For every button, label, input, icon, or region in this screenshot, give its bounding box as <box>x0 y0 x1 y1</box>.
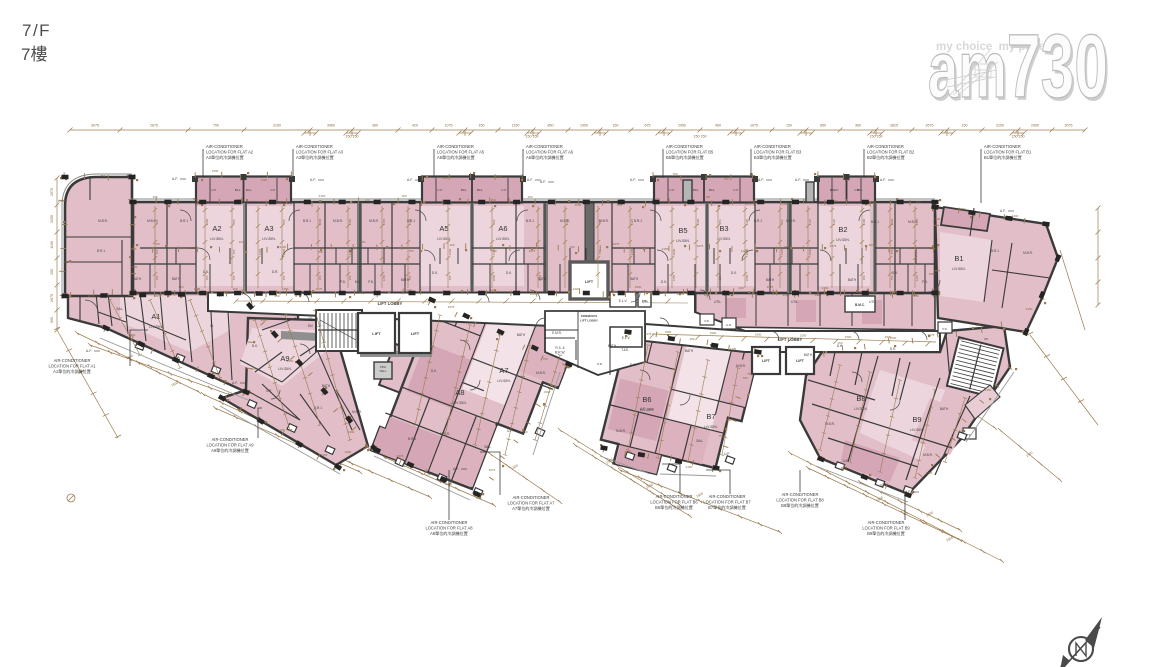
svg-text:LOCATION FOR FLAT B7: LOCATION FOR FLAT B7 <box>703 500 751 505</box>
svg-text:B.R.1: B.R.1 <box>303 219 311 223</box>
svg-text:A.F.: A.F. <box>640 407 646 411</box>
svg-text:1500: 1500 <box>885 335 892 339</box>
svg-text:LOCATION FOR FLAT B5: LOCATION FOR FLAT B5 <box>666 150 714 155</box>
svg-text:2150: 2150 <box>1026 307 1033 311</box>
svg-text:A.F.: A.F. <box>172 177 178 181</box>
svg-text:B.R.1: B.R.1 <box>871 220 879 224</box>
svg-text:3150: 3150 <box>50 215 54 223</box>
svg-text:150: 150 <box>155 275 159 280</box>
svg-text:A1單位的冷調機位置: A1單位的冷調機位置 <box>53 368 91 374</box>
svg-text:LOCATION FOR FLAT A5: LOCATION FOR FLAT A5 <box>437 150 485 155</box>
svg-text:LOCATION FOR FLAT A9: LOCATION FOR FLAT A9 <box>206 443 254 448</box>
svg-text:BAL.: BAL. <box>693 188 700 192</box>
svg-text:AIR-CONDITIONER: AIR-CONDITIONER <box>709 494 746 499</box>
svg-text:3075: 3075 <box>613 242 620 246</box>
svg-text:2400: 2400 <box>448 248 452 255</box>
svg-text:AIR-CONDITIONER: AIR-CONDITIONER <box>212 437 249 442</box>
svg-text:LOCATION FOR FLAT B3: LOCATION FOR FLAT B3 <box>754 150 802 155</box>
svg-text:A.F.: A.F. <box>86 349 92 353</box>
svg-text:420: 420 <box>412 124 418 128</box>
svg-text:D.R.: D.R. <box>272 270 278 274</box>
svg-text:3075: 3075 <box>496 175 503 179</box>
svg-text:750: 750 <box>408 275 412 280</box>
svg-text:1150: 1150 <box>512 124 520 128</box>
svg-text:A7單位的冷調機位置: A7單位的冷調機位置 <box>512 505 550 511</box>
svg-text:U.P.: U.P. <box>266 389 272 393</box>
svg-text:B9: B9 <box>912 415 921 424</box>
svg-text:LOCATION FOR FLAT A1: LOCATION FOR FLAT A1 <box>48 364 96 369</box>
svg-text:A.F.: A.F. <box>905 490 911 494</box>
svg-text:750: 750 <box>890 275 894 280</box>
svg-text:1500: 1500 <box>575 203 582 207</box>
svg-text:2150: 2150 <box>321 453 328 457</box>
svg-text:B9單位的冷調機位置: B9單位的冷調機位置 <box>867 530 905 536</box>
svg-text:100: 100 <box>232 287 237 291</box>
svg-text:150: 150 <box>348 275 352 280</box>
svg-text:1125: 1125 <box>745 219 749 226</box>
svg-text:UTIL.: UTIL. <box>791 300 799 304</box>
svg-text:1075: 1075 <box>445 124 453 128</box>
svg-text:900: 900 <box>50 317 54 323</box>
svg-text:A2單位的冷調機位置: A2單位的冷調機位置 <box>206 154 244 160</box>
svg-text:AIR-CONDITIONER: AIR-CONDITIONER <box>54 358 91 363</box>
svg-text:2400: 2400 <box>348 248 352 255</box>
svg-text:A6單位的冷調機位置: A6單位的冷調機位置 <box>526 154 564 160</box>
svg-text:1500: 1500 <box>845 335 852 339</box>
svg-text:LOCATION FOR FLAT B1: LOCATION FOR FLAT B1 <box>984 150 1032 155</box>
svg-text:AIR-CONDITIONER: AIR-CONDITIONER <box>656 494 693 499</box>
svg-text:1500: 1500 <box>510 463 518 470</box>
svg-text:BATH: BATH <box>608 344 617 348</box>
svg-text:100: 100 <box>250 367 255 371</box>
svg-text:LOCATION FOR FLAT A3: LOCATION FOR FLAT A3 <box>296 150 344 155</box>
svg-text:150: 150 <box>152 195 157 199</box>
svg-text:3150: 3150 <box>273 124 281 128</box>
svg-text:M.B.R.: M.B.R. <box>536 371 546 375</box>
svg-text:1950: 1950 <box>580 124 588 128</box>
svg-text:LIV./DIN.: LIV./DIN. <box>910 428 924 432</box>
svg-text:2400: 2400 <box>926 471 933 475</box>
svg-text:1500: 1500 <box>220 379 227 383</box>
svg-text:A.F.: A.F. <box>1000 209 1006 213</box>
svg-text:P.D.: P.D. <box>943 327 948 331</box>
svg-text:LIV./DIN.: LIV./DIN. <box>210 237 224 241</box>
svg-text:U.P.: U.P. <box>843 459 849 463</box>
svg-text:150: 150 <box>479 124 485 128</box>
svg-text:AIR-CONDITIONER: AIR-CONDITIONER <box>867 144 904 149</box>
svg-text:150: 150 <box>492 219 496 224</box>
svg-text:A8單位的冷調機位置: A8單位的冷調機位置 <box>430 530 468 536</box>
svg-text:A.F.: A.F. <box>310 178 316 182</box>
svg-text:150: 150 <box>63 260 68 264</box>
svg-text:1500: 1500 <box>929 272 936 276</box>
svg-text:LIV./DIN.: LIV./DIN. <box>836 238 850 242</box>
svg-text:2400: 2400 <box>358 291 365 295</box>
svg-text:1125: 1125 <box>630 219 634 226</box>
svg-text:AIR-CONDITIONER: AIR-CONDITIONER <box>437 144 474 149</box>
svg-text:2400: 2400 <box>630 248 634 255</box>
svg-text:D.K.: D.K. <box>506 271 512 275</box>
svg-text:150: 150 <box>718 275 722 280</box>
svg-text:A.F.: A.F. <box>527 178 533 182</box>
svg-text:2000: 2000 <box>745 248 749 255</box>
svg-text:LIV./DIN.: LIV./DIN. <box>278 367 292 371</box>
svg-text:B.R.1: B.R.1 <box>754 219 762 223</box>
svg-text:150: 150 <box>527 195 532 199</box>
svg-text:3150: 3150 <box>996 124 1004 128</box>
svg-text:am730: am730 <box>928 17 1108 117</box>
svg-text:150: 150 <box>689 337 694 341</box>
svg-text:150: 150 <box>448 275 452 280</box>
svg-text:2000: 2000 <box>492 274 496 281</box>
svg-text:M.R.W.: M.R.W. <box>555 351 566 355</box>
svg-text:UTIL.: UTIL. <box>642 300 650 304</box>
svg-text:2000: 2000 <box>890 218 894 225</box>
svg-text:100: 100 <box>153 294 158 298</box>
svg-text:2950: 2950 <box>1031 124 1039 128</box>
svg-text:3075: 3075 <box>490 288 497 292</box>
svg-text:D.K.: D.K. <box>432 271 438 275</box>
svg-text:7/F: 7/F <box>22 21 51 40</box>
svg-text:B6: B6 <box>642 395 651 404</box>
svg-text:2400: 2400 <box>348 430 355 434</box>
svg-text:750: 750 <box>672 172 677 176</box>
svg-text:D.K.: D.K. <box>661 280 667 284</box>
svg-text:3075: 3075 <box>869 243 876 247</box>
svg-text:100: 100 <box>738 286 743 290</box>
svg-text:850: 850 <box>548 124 554 128</box>
svg-text:150: 150 <box>915 200 920 204</box>
svg-text:675: 675 <box>645 124 651 128</box>
svg-text:AIR-CONDITIONER: AIR-CONDITIONER <box>666 144 703 149</box>
svg-text:3075: 3075 <box>448 305 455 309</box>
svg-text:M.P.: M.P. <box>355 280 361 284</box>
svg-text:T.&S.: T.&S. <box>621 348 629 352</box>
svg-text:160: 160 <box>613 124 619 128</box>
svg-text:W.: W. <box>210 324 214 328</box>
svg-text:A3單位的冷調機位置: A3單位的冷調機位置 <box>296 154 334 160</box>
svg-text:2150: 2150 <box>276 200 283 204</box>
svg-text:1125: 1125 <box>915 275 919 282</box>
svg-text:LIV./DIN.: LIV./DIN. <box>437 237 451 241</box>
svg-text:2150: 2150 <box>319 194 326 198</box>
svg-text:3150: 3150 <box>915 218 919 225</box>
svg-text:BATH: BATH <box>630 277 639 281</box>
svg-text:A8: A8 <box>455 388 464 397</box>
svg-text:3075: 3075 <box>88 294 95 298</box>
svg-text:DN: DN <box>960 337 964 341</box>
svg-text:M.B.R.: M.B.R. <box>616 429 626 433</box>
svg-text:UP: UP <box>308 317 312 321</box>
svg-text:3150: 3150 <box>258 248 262 255</box>
svg-text:UTIL.: UTIL. <box>714 300 722 304</box>
svg-text:A2: A2 <box>212 224 221 233</box>
svg-text:UTIL.: UTIL. <box>869 300 877 304</box>
svg-text:A.F.: A.F. <box>630 178 636 182</box>
svg-text:1125: 1125 <box>911 293 918 297</box>
svg-text:3075: 3075 <box>529 249 536 253</box>
svg-text:150: 150 <box>569 245 574 249</box>
svg-text:D.K.: D.K. <box>252 344 258 348</box>
svg-text:BATH: BATH <box>766 278 775 282</box>
svg-text:1500: 1500 <box>755 332 762 336</box>
svg-text:B6單位的冷調機位置: B6單位的冷調機位置 <box>655 504 693 510</box>
svg-text:150: 150 <box>155 249 159 254</box>
svg-text:B1單位的冷調機位置: B1單位的冷調機位置 <box>984 154 1022 160</box>
svg-text:M.B.R.: M.B.R. <box>1023 251 1033 255</box>
svg-text:BATH: BATH <box>133 277 142 281</box>
svg-text:P.D.: P.D. <box>704 319 709 323</box>
svg-text:LIFT: LIFT <box>762 359 771 363</box>
svg-text:750: 750 <box>213 124 219 128</box>
svg-text:3075: 3075 <box>316 287 323 291</box>
svg-text:750: 750 <box>408 249 413 253</box>
svg-text:1500: 1500 <box>58 199 65 203</box>
svg-text:AIR-CONDITIONER: AIR-CONDITIONER <box>526 144 563 149</box>
svg-text:1075: 1075 <box>750 124 758 128</box>
svg-text:P.D.: P.D. <box>368 280 374 284</box>
svg-text:1500: 1500 <box>695 492 704 499</box>
svg-text:750: 750 <box>742 376 747 380</box>
svg-text:2400: 2400 <box>784 245 791 249</box>
svg-text:E.M.R.: E.M.R. <box>552 331 562 335</box>
svg-text:2000: 2000 <box>205 218 209 225</box>
svg-text:LOCATION FOR FLAT A8: LOCATION FOR FLAT A8 <box>425 526 473 531</box>
svg-text:B.R.1: B.R.1 <box>408 437 416 441</box>
svg-text:U.P.: U.P. <box>270 188 276 192</box>
svg-text:2400: 2400 <box>783 293 790 297</box>
svg-text:1125: 1125 <box>189 246 196 250</box>
svg-text:3460: 3460 <box>327 124 335 128</box>
svg-text:1100: 1100 <box>50 241 54 249</box>
svg-text:750: 750 <box>522 430 527 434</box>
svg-text:2000: 2000 <box>318 218 322 225</box>
svg-text:100: 100 <box>238 240 243 244</box>
svg-text:750: 750 <box>723 177 728 181</box>
svg-text:100: 100 <box>703 293 708 297</box>
svg-text:B.R.1: B.R.1 <box>97 249 105 253</box>
svg-text:3150: 3150 <box>382 274 386 281</box>
svg-text:3075: 3075 <box>841 466 848 470</box>
svg-text:P.D.: P.D. <box>597 362 603 366</box>
svg-text:100: 100 <box>449 243 454 247</box>
svg-text:2075: 2075 <box>50 188 54 196</box>
svg-text:1125: 1125 <box>530 292 537 296</box>
svg-text:B1: B1 <box>954 254 963 263</box>
svg-text:1500: 1500 <box>645 482 653 489</box>
svg-text:1125: 1125 <box>704 195 711 199</box>
svg-text:BATH: BATH <box>172 277 181 281</box>
svg-text:D.K.: D.K. <box>892 271 898 275</box>
svg-text:150: 150 <box>205 275 209 280</box>
svg-text:A.F.: A.F. <box>880 178 886 182</box>
svg-text:1125: 1125 <box>808 219 812 226</box>
svg-text:150: 150 <box>890 249 894 254</box>
svg-text:B7: B7 <box>706 412 715 421</box>
svg-text:BAL.: BAL. <box>697 439 704 443</box>
svg-text:360: 360 <box>372 124 378 128</box>
svg-text:150: 150 <box>780 219 784 224</box>
svg-text:100: 100 <box>364 198 369 202</box>
svg-text:AIR-CONDITIONER: AIR-CONDITIONER <box>296 144 333 149</box>
svg-text:LOCATION FOR FLAT A6: LOCATION FOR FLAT A6 <box>526 150 574 155</box>
svg-text:150 150: 150 150 <box>870 135 883 139</box>
svg-text:2150: 2150 <box>934 217 941 221</box>
svg-text:7樓: 7樓 <box>21 45 47 64</box>
svg-text:3075: 3075 <box>677 292 684 296</box>
svg-text:B.R.1: B.R.1 <box>526 219 534 223</box>
svg-text:A.F.: A.F. <box>795 178 801 182</box>
svg-text:LIFT: LIFT <box>796 359 805 363</box>
svg-text:150: 150 <box>962 124 968 128</box>
svg-text:M.B.R.: M.B.R. <box>736 364 746 368</box>
svg-text:D.K.: D.K. <box>630 363 636 367</box>
svg-text:BATH: BATH <box>804 353 813 357</box>
svg-text:2950: 2950 <box>678 124 686 128</box>
svg-text:E.L.V.: E.L.V. <box>619 299 628 303</box>
svg-text:LIFT: LIFT <box>585 279 594 284</box>
svg-text:2150: 2150 <box>282 287 289 291</box>
svg-text:3075: 3075 <box>745 202 752 206</box>
svg-text:2400: 2400 <box>871 290 878 294</box>
svg-text:U.P.: U.P. <box>211 188 217 192</box>
svg-text:1500: 1500 <box>131 265 138 269</box>
svg-text:150: 150 <box>490 198 495 202</box>
svg-text:LIV./DIN.: LIV./DIN. <box>496 237 510 241</box>
svg-text:3150: 3150 <box>538 274 542 281</box>
svg-text:LIV./DIN.: LIV./DIN. <box>149 325 163 329</box>
svg-text:A6: A6 <box>498 224 507 233</box>
svg-text:P.D.: P.D. <box>340 280 346 284</box>
svg-text:A.F.: A.F. <box>407 178 413 182</box>
svg-text:3150: 3150 <box>780 248 784 255</box>
svg-text:2000: 2000 <box>808 248 812 255</box>
svg-text:2400: 2400 <box>261 318 268 322</box>
svg-text:150: 150 <box>862 275 866 280</box>
svg-text:R.S. &: R.S. & <box>555 346 565 350</box>
svg-text:BAL.: BAL. <box>477 188 484 192</box>
svg-text:AIR-CONDITIONER: AIR-CONDITIONER <box>431 520 468 525</box>
svg-text:P.D.: P.D. <box>922 280 928 284</box>
svg-text:B5: B5 <box>678 226 687 235</box>
svg-text:B.M.C.: B.M.C. <box>855 303 865 307</box>
svg-text:2000: 2000 <box>745 274 749 281</box>
svg-text:LIFT: LIFT <box>411 331 420 336</box>
svg-text:150: 150 <box>837 341 842 345</box>
svg-text:1125: 1125 <box>194 287 201 291</box>
svg-text:1125: 1125 <box>261 178 268 182</box>
svg-text:150: 150 <box>718 219 722 224</box>
svg-text:LOCATION FOR FLAT B6: LOCATION FOR FLAT B6 <box>650 500 698 505</box>
svg-text:750: 750 <box>100 174 105 178</box>
svg-text:150: 150 <box>401 194 406 198</box>
svg-text:2150: 2150 <box>985 388 992 392</box>
svg-text:LIV./DIN.: LIV./DIN. <box>676 239 690 243</box>
svg-text:360: 360 <box>855 124 861 128</box>
svg-text:2675: 2675 <box>50 294 54 302</box>
svg-text:BAL.: BAL. <box>461 188 468 192</box>
svg-text:3075: 3075 <box>489 468 496 472</box>
svg-text:U.P.: U.P. <box>733 188 739 192</box>
svg-text:M.B.R.: M.B.R. <box>786 219 796 223</box>
svg-text:LIV./DIN.: LIV./DIN. <box>453 401 467 405</box>
svg-text:BAL.: BAL. <box>709 188 716 192</box>
svg-text:750: 750 <box>626 450 631 454</box>
svg-text:850: 850 <box>820 124 826 128</box>
svg-text:2400: 2400 <box>862 218 866 225</box>
svg-text:D.K.: D.K. <box>431 369 437 373</box>
svg-text:750: 750 <box>192 197 197 201</box>
svg-text:BAL.: BAL. <box>485 445 492 449</box>
svg-text:LIV./DIN.: LIV./DIN. <box>704 425 718 429</box>
svg-text:A5單位的冷調機位置: A5單位的冷調機位置 <box>437 154 475 160</box>
svg-text:1125: 1125 <box>959 429 966 433</box>
svg-text:UP: UP <box>984 337 988 341</box>
svg-text:1500: 1500 <box>212 169 219 173</box>
svg-text:3075: 3075 <box>91 124 99 128</box>
svg-text:A9單位的冷調機位置: A9單位的冷調機位置 <box>211 447 249 453</box>
svg-text:B2單位的冷調機位置: B2單位的冷調機位置 <box>867 154 905 160</box>
svg-text:3150: 3150 <box>672 274 676 281</box>
svg-text:BAL.: BAL. <box>830 188 837 192</box>
svg-text:B.R.1: B.R.1 <box>634 219 642 223</box>
svg-text:U.P.: U.P. <box>669 188 675 192</box>
svg-text:150: 150 <box>232 249 236 254</box>
svg-text:AIR-CONDITIONER: AIR-CONDITIONER <box>984 144 1021 149</box>
svg-text:M.B.R.: M.B.R. <box>369 219 379 223</box>
svg-text:U.P.: U.P. <box>437 188 443 192</box>
svg-text:150: 150 <box>155 219 159 224</box>
svg-text:BAL.: BAL. <box>246 188 253 192</box>
svg-text:H.R.: H.R. <box>726 323 732 327</box>
svg-text:AIR-CONDITIONER: AIR-CONDITIONER <box>868 520 905 525</box>
svg-text:1500: 1500 <box>345 450 352 454</box>
svg-text:3075: 3075 <box>397 454 404 458</box>
svg-text:150: 150 <box>178 285 183 289</box>
svg-text:1125: 1125 <box>492 249 496 256</box>
svg-text:B8單位的冷調機位置: B8單位的冷調機位置 <box>781 502 819 508</box>
svg-text:1125: 1125 <box>280 245 287 249</box>
svg-text:1125: 1125 <box>408 219 412 226</box>
svg-text:AIR-CONDITIONER: AIR-CONDITIONER <box>206 144 243 149</box>
svg-text:2150: 2150 <box>822 286 829 290</box>
svg-text:LOCATION FOR FLAT B2: LOCATION FOR FLAT B2 <box>867 150 915 155</box>
svg-text:FIREMAN'S: FIREMAN'S <box>581 314 597 318</box>
svg-text:B5單位的冷調機位置: B5單位的冷調機位置 <box>666 154 704 160</box>
svg-text:LIV./DIN.: LIV./DIN. <box>497 379 511 383</box>
svg-text:WELL: WELL <box>379 369 387 373</box>
svg-text:A.F.: A.F. <box>540 180 546 184</box>
svg-text:750: 750 <box>225 291 230 295</box>
svg-text:2150: 2150 <box>287 359 294 363</box>
svg-text:1500: 1500 <box>870 200 877 204</box>
svg-text:B7單位的冷調機位置: B7單位的冷調機位置 <box>708 504 746 510</box>
svg-text:150: 150 <box>50 269 54 275</box>
svg-text:1500: 1500 <box>710 331 717 335</box>
svg-text:2400: 2400 <box>348 218 352 225</box>
svg-text:2400: 2400 <box>815 293 822 297</box>
svg-text:BAL.: BAL. <box>117 307 124 311</box>
svg-text:U.P.: U.P. <box>854 188 860 192</box>
svg-text:750: 750 <box>844 178 849 182</box>
svg-text:150 150: 150 150 <box>346 135 359 139</box>
svg-text:DN: DN <box>308 324 313 328</box>
svg-text:2400: 2400 <box>696 218 700 225</box>
svg-text:3075: 3075 <box>767 285 774 289</box>
svg-text:A.F.: A.F. <box>453 467 459 471</box>
svg-text:3075: 3075 <box>645 332 652 336</box>
svg-text:LIFT LOBBY: LIFT LOBBY <box>580 319 598 323</box>
